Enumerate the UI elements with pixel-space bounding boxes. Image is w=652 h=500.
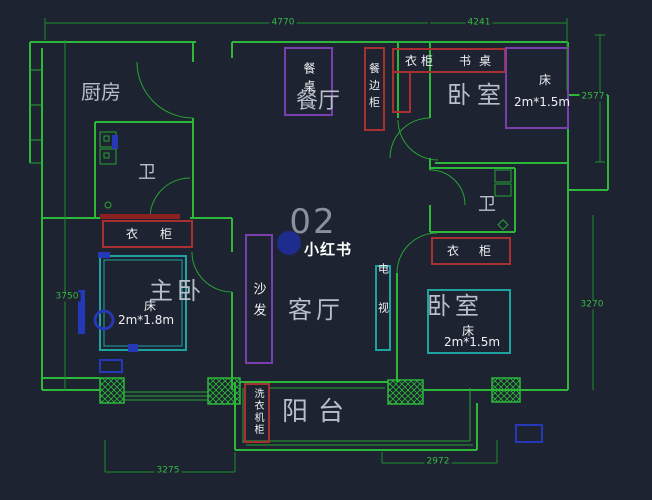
dimension-bottom-left: 3275 xyxy=(155,467,182,476)
furniture-label-bed-master: 床 xyxy=(144,300,156,312)
room-label-bedroom-bottom: 卧室 xyxy=(427,294,483,318)
furniture-label-wardrobe-right: 衣柜 xyxy=(427,245,511,257)
furniture-label-washer-cabinet: 洗衣机柜 xyxy=(252,388,262,436)
xiaohongshu-watermark: 小红书 xyxy=(304,243,352,258)
dimension-right-lower: 3270 xyxy=(579,301,606,310)
floorplan-canvas: 厨房 卫 餐厅 卧室 卫 主卧 客厅 卧室 阳台 餐桌 餐边柜 衣柜 书桌 床 … xyxy=(0,0,652,500)
furniture-label-bed-top-size: 2m*1.5m xyxy=(514,96,570,108)
room-label-bath-left: 卫 xyxy=(138,164,156,182)
furniture-label-desk: 书桌 xyxy=(459,55,499,67)
furniture-label-bed-master-size: 2m*1.8m xyxy=(118,314,174,326)
furniture-label-sofa: 沙发 xyxy=(252,282,265,324)
room-label-bath-right: 卫 xyxy=(478,196,496,214)
room-label-master-bedroom: 主卧 xyxy=(149,279,205,303)
dimension-right-upper: 2577 xyxy=(580,93,607,102)
dimension-top-right: 4241 xyxy=(466,19,493,28)
furniture-label-tv: 电视 xyxy=(378,263,389,341)
dimension-left: 3750 xyxy=(54,293,81,302)
dimension-top-left: 4770 xyxy=(270,19,297,28)
dimension-bottom-right: 2972 xyxy=(425,458,452,467)
furniture-label-wardrobe-top: 衣柜 xyxy=(405,55,437,67)
furniture-label-wardrobe-left: 衣柜 xyxy=(104,228,194,240)
furniture-label-bed-top: 床 xyxy=(539,74,551,86)
furniture-label-dining-table: 餐桌 xyxy=(303,62,315,98)
watermark-number: 02 xyxy=(289,205,336,239)
room-label-bedroom-top: 卧室 xyxy=(447,83,507,107)
furniture-label-bed-bottom-size: 2m*1.5m xyxy=(444,336,500,348)
room-label-living: 客厅 xyxy=(288,298,344,322)
room-label-balcony: 阳台 xyxy=(282,399,354,425)
furniture-label-sideboard: 餐边柜 xyxy=(369,63,380,114)
room-label-kitchen: 厨房 xyxy=(81,82,121,102)
